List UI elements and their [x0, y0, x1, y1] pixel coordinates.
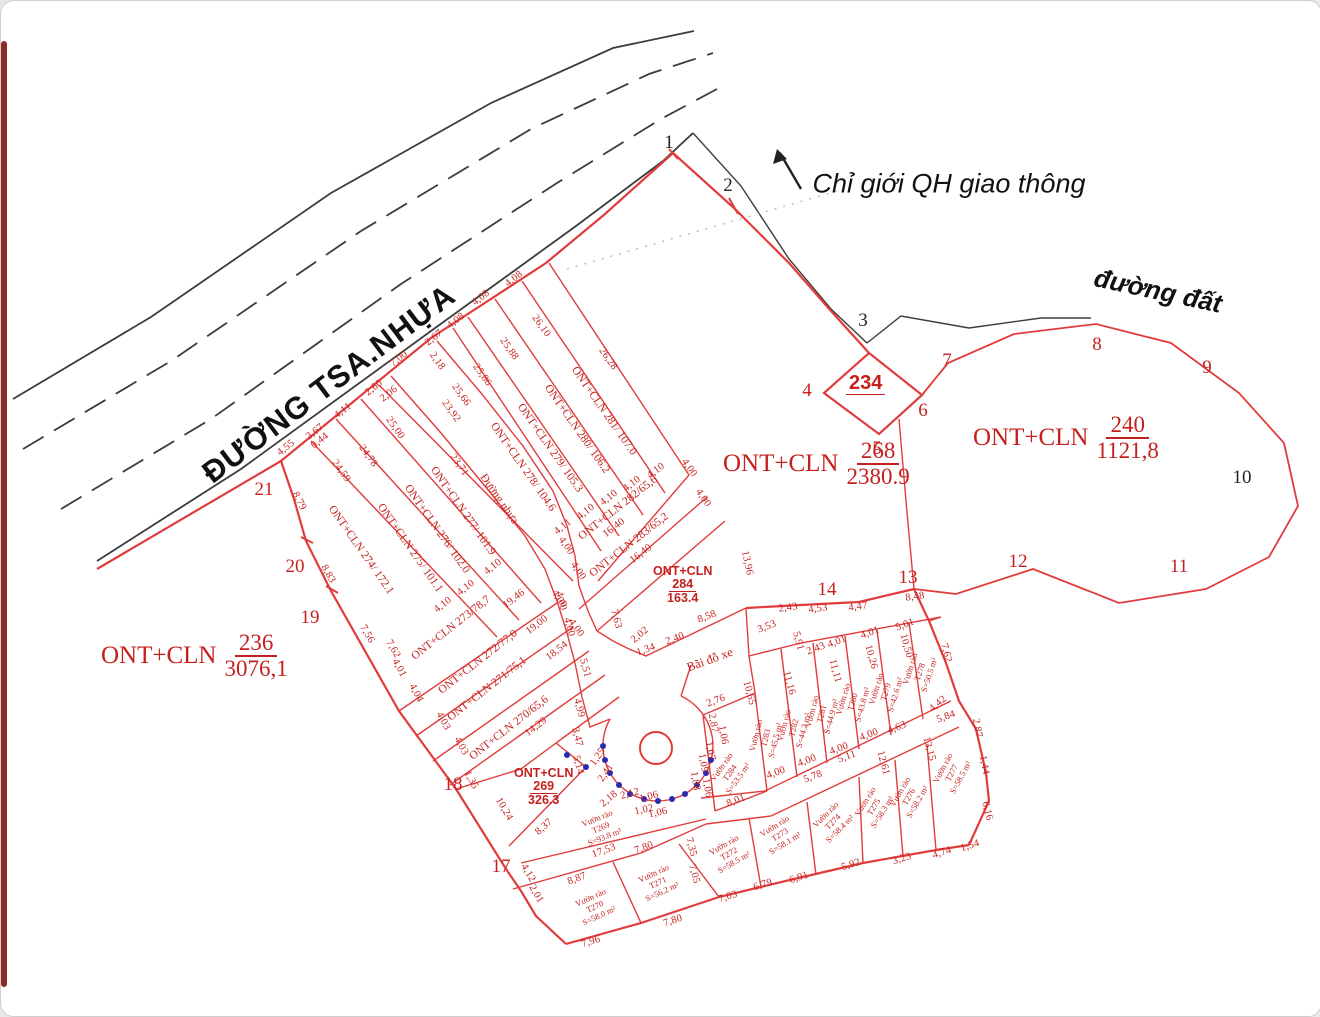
parcel-number: 268 — [857, 439, 900, 465]
parcel-fraction-234: 234 — [846, 373, 885, 395]
parcel-number: 236 — [235, 631, 278, 657]
boundary-point-18: 18 — [444, 774, 463, 796]
parcel-number: 269 — [530, 780, 557, 794]
boundary-point-12: 12 — [1009, 551, 1028, 573]
parcel-area: 3076,1 — [224, 657, 287, 681]
parcel-boundaries-minor — [311, 263, 959, 923]
parcel-fraction-269: ONT+CLN269326.3 — [514, 766, 573, 807]
planning-boundary-arrow — [773, 149, 801, 189]
boundary-point-6: 6 — [918, 400, 928, 422]
boundary-point-20: 20 — [286, 556, 305, 578]
parcel-area: 1121,8 — [1096, 439, 1158, 463]
boundary-point-8: 8 — [1092, 334, 1102, 356]
parcel-fraction-240: ONT+CLN2401121,8 — [973, 413, 1159, 463]
boundary-point-14: 14 — [818, 579, 837, 601]
parcel-number: 240 — [1106, 413, 1149, 439]
road-lines — [13, 31, 1091, 561]
land-use-code: ONT+CLN — [514, 766, 573, 780]
boundary-point-9: 9 — [1202, 357, 1212, 379]
parcel-fraction-236: ONT+CLN2363076,1 — [101, 631, 288, 681]
land-use-code: ONT+CLN — [723, 450, 838, 478]
boundary-point-2: 2 — [723, 175, 733, 197]
parcel-area: 2380.9 — [846, 465, 909, 489]
boundary-point-1: 1 — [664, 132, 674, 154]
boundary-point-21: 21 — [255, 479, 274, 501]
land-use-code: ONT+CLN — [973, 424, 1088, 452]
land-use-code: ONT+CLN — [101, 642, 216, 670]
parcel-number: 284 — [669, 578, 696, 592]
boundary-point-13: 13 — [899, 567, 918, 589]
parcel-area: 163.4 — [667, 592, 698, 605]
cadastral-map-page: ĐƯỜNG TSA.NHỰA Chỉ giới QH giao thông đư… — [0, 0, 1320, 1017]
boundary-point-10: 10 — [1233, 467, 1252, 489]
boundary-point-7: 7 — [942, 350, 952, 372]
parcel-fraction-284: ONT+CLN284163.4 — [653, 564, 712, 605]
planning-boundary-label: Chỉ giới QH giao thông — [813, 169, 1086, 200]
boundary-point-11: 11 — [1170, 556, 1188, 578]
boundary-point-19: 19 — [301, 607, 320, 629]
land-use-code: ONT+CLN — [653, 564, 712, 578]
boundary-point-4: 4 — [802, 380, 812, 402]
boundary-point-3: 3 — [858, 310, 868, 332]
parcel-area: 326.3 — [528, 794, 559, 807]
parcel-number: 234 — [846, 373, 885, 395]
boundary-point-17: 17 — [492, 856, 511, 878]
parcel-fraction-268: ONT+CLN2682380.9 — [723, 439, 910, 489]
